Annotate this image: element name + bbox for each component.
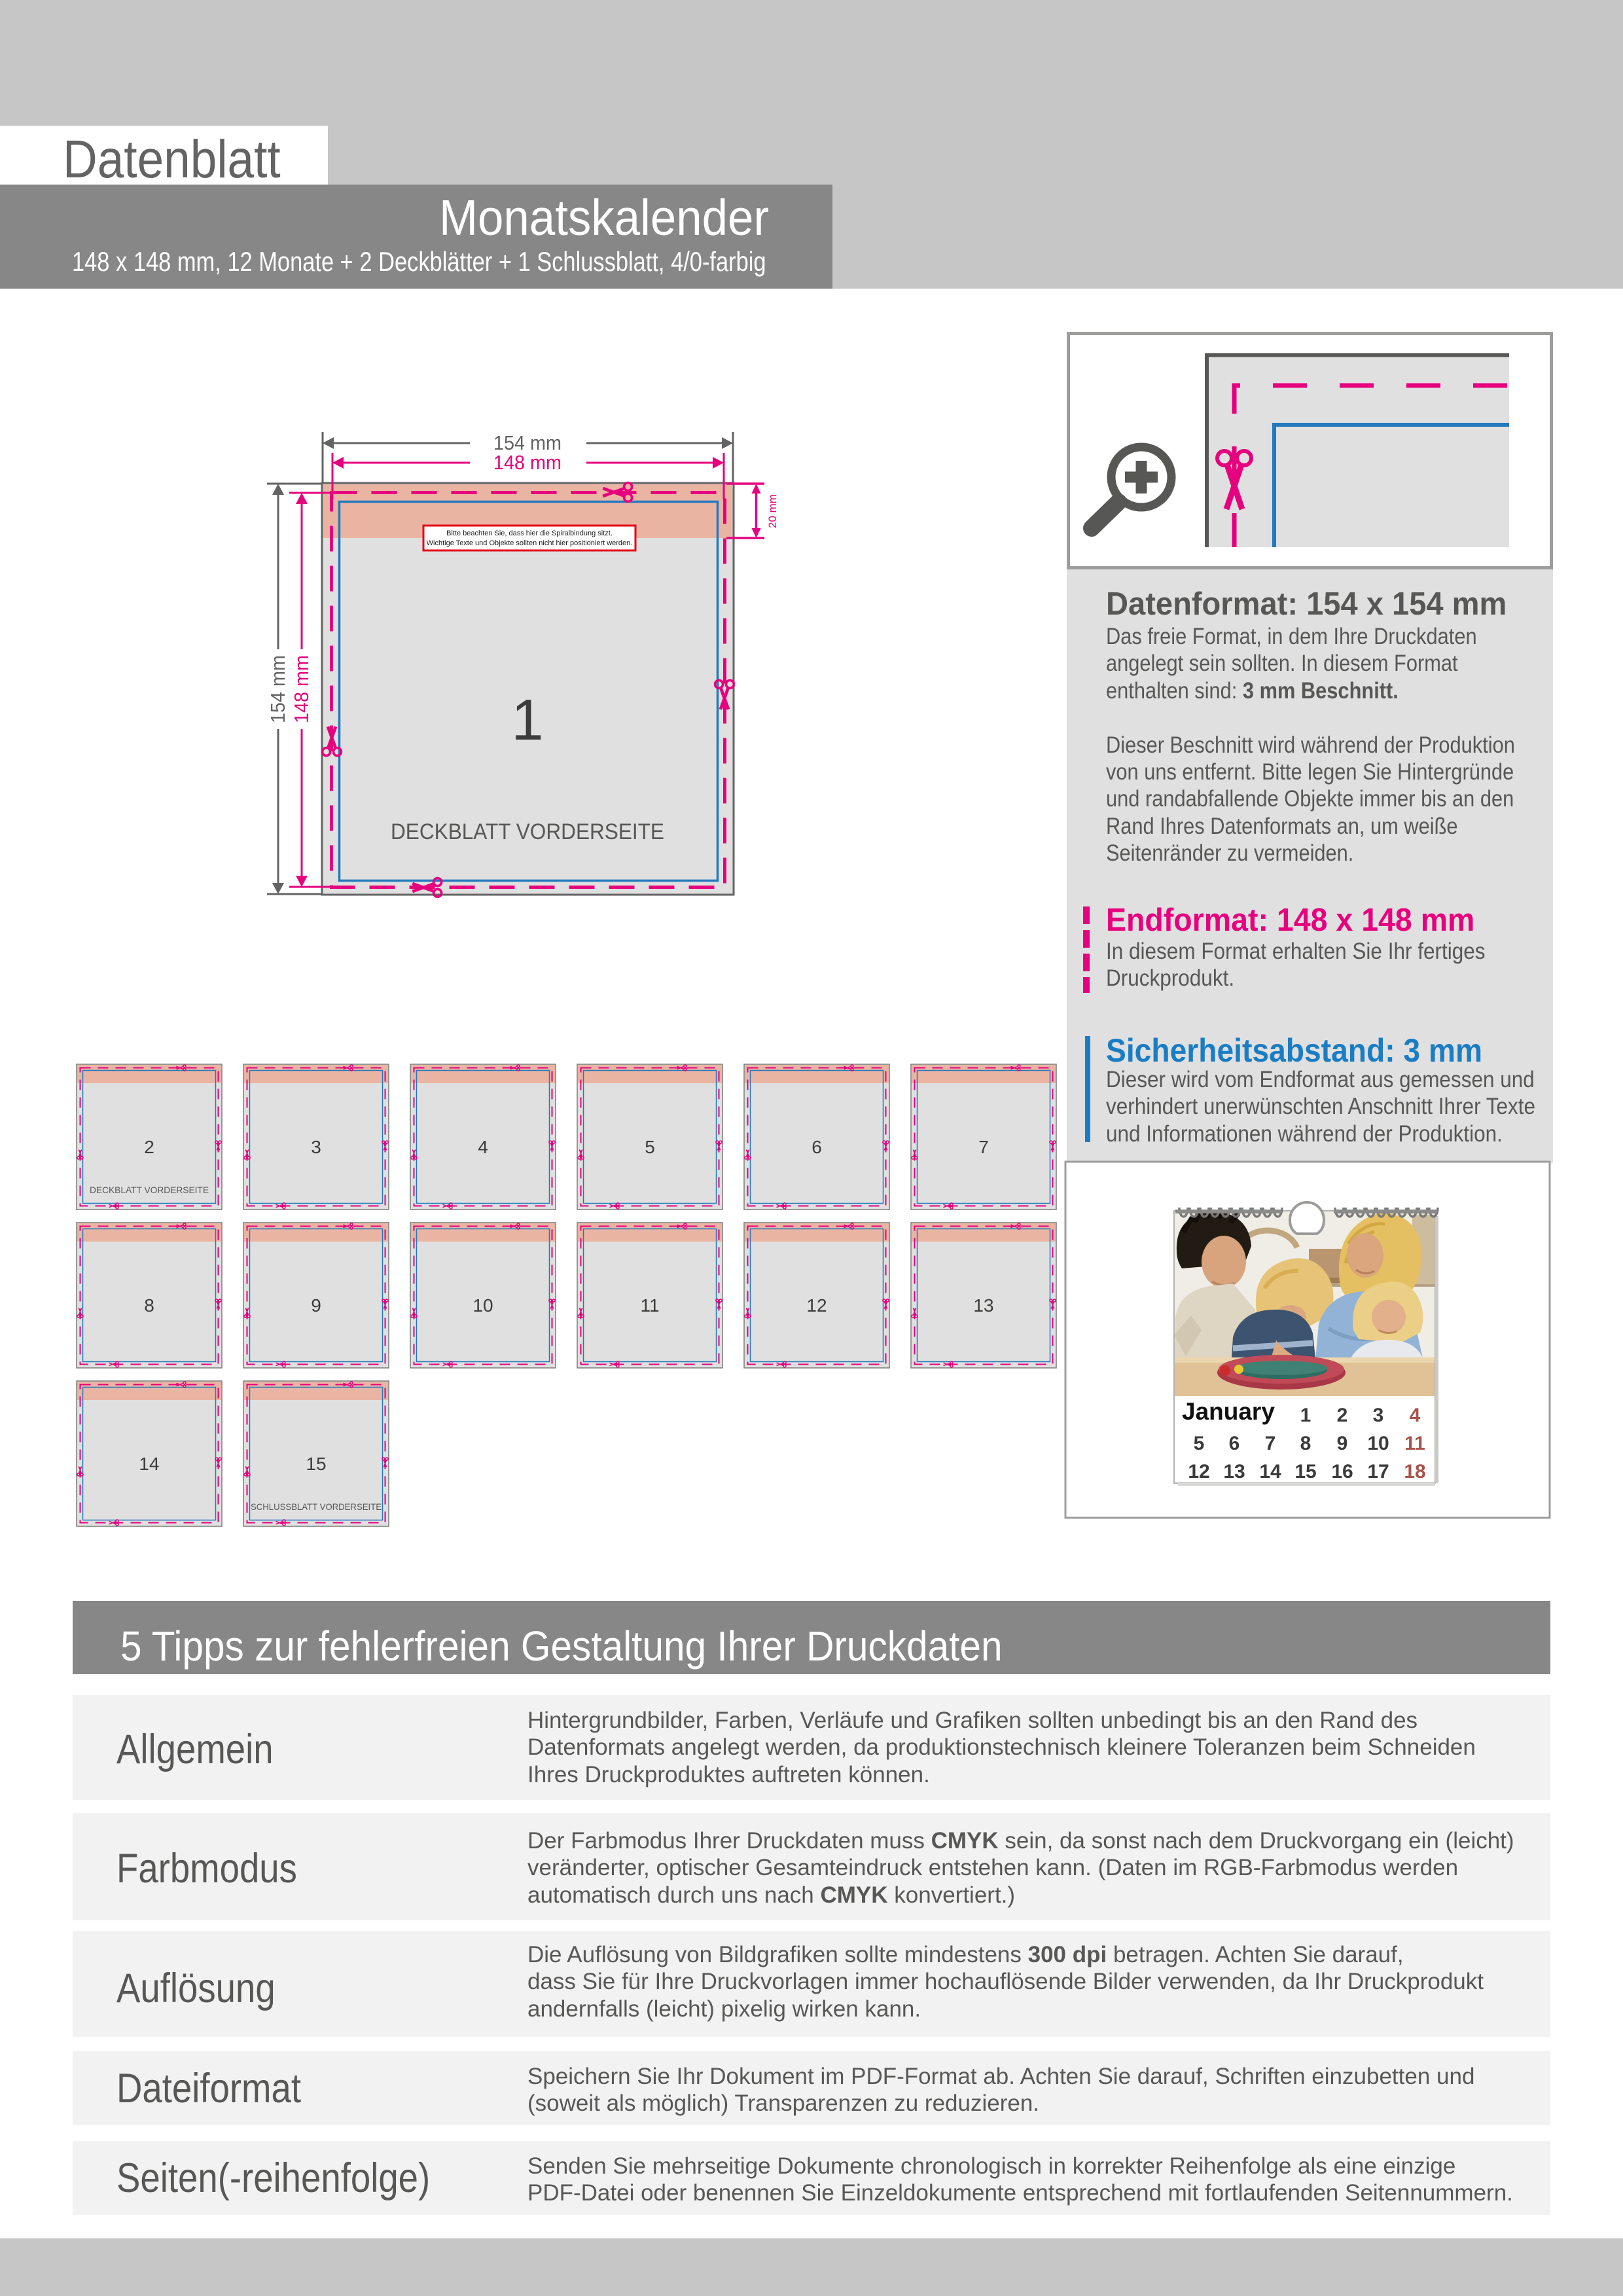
svg-text:Bitte beachten Sie, dass hier: Bitte beachten Sie, dass hier die Spiral… xyxy=(446,529,613,537)
svg-text:1: 1 xyxy=(1300,1405,1311,1426)
svg-text:10: 10 xyxy=(1367,1433,1389,1454)
svg-text:14: 14 xyxy=(1259,1461,1281,1482)
svg-text:3: 3 xyxy=(311,1137,321,1157)
svg-text:DECKBLATT VORDERSEITE: DECKBLATT VORDERSEITE xyxy=(391,819,664,844)
svg-text:15: 15 xyxy=(306,1454,326,1474)
svg-text:1: 1 xyxy=(512,687,544,752)
svg-text:9: 9 xyxy=(1337,1433,1348,1454)
svg-text:7: 7 xyxy=(978,1137,989,1157)
svg-text:20 mm: 20 mm xyxy=(766,494,779,528)
svg-text:9: 9 xyxy=(311,1295,321,1316)
svg-text:5: 5 xyxy=(1194,1433,1205,1454)
svg-text:14: 14 xyxy=(139,1454,159,1474)
svg-text:5: 5 xyxy=(645,1137,655,1157)
svg-text:Wichtige Texte und Objekte sol: Wichtige Texte und Objekte sollten nicht… xyxy=(427,539,633,547)
svg-text:8: 8 xyxy=(1300,1433,1311,1454)
svg-text:6: 6 xyxy=(1229,1433,1240,1454)
svg-text:2: 2 xyxy=(1337,1405,1348,1426)
svg-text:12: 12 xyxy=(806,1295,827,1316)
svg-text:SCHLUSSBLATT VORDERSEITE: SCHLUSSBLATT VORDERSEITE xyxy=(251,1501,382,1512)
svg-text:10: 10 xyxy=(473,1295,493,1316)
svg-text:13: 13 xyxy=(1223,1461,1245,1482)
svg-text:148 mm: 148 mm xyxy=(290,655,313,723)
svg-text:2: 2 xyxy=(144,1137,154,1157)
svg-text:4: 4 xyxy=(478,1137,488,1157)
svg-text:16: 16 xyxy=(1331,1461,1353,1482)
svg-text:154 mm: 154 mm xyxy=(266,655,289,723)
svg-text:15: 15 xyxy=(1294,1461,1316,1482)
svg-text:January: January xyxy=(1182,1398,1275,1425)
svg-text:6: 6 xyxy=(811,1137,822,1157)
svg-text:13: 13 xyxy=(973,1295,993,1316)
svg-text:8: 8 xyxy=(144,1295,154,1316)
svg-text:12: 12 xyxy=(1188,1461,1209,1482)
svg-text:7: 7 xyxy=(1265,1433,1276,1454)
svg-text:3: 3 xyxy=(1373,1405,1384,1426)
svg-text:18: 18 xyxy=(1404,1461,1425,1482)
svg-text:11: 11 xyxy=(1404,1433,1425,1454)
svg-text:17: 17 xyxy=(1367,1461,1389,1482)
svg-text:4: 4 xyxy=(1410,1405,1421,1426)
svg-text:11: 11 xyxy=(640,1295,659,1316)
svg-text:DECKBLATT VORDERSEITE: DECKBLATT VORDERSEITE xyxy=(90,1185,209,1195)
svg-text:148 mm: 148 mm xyxy=(493,451,562,474)
